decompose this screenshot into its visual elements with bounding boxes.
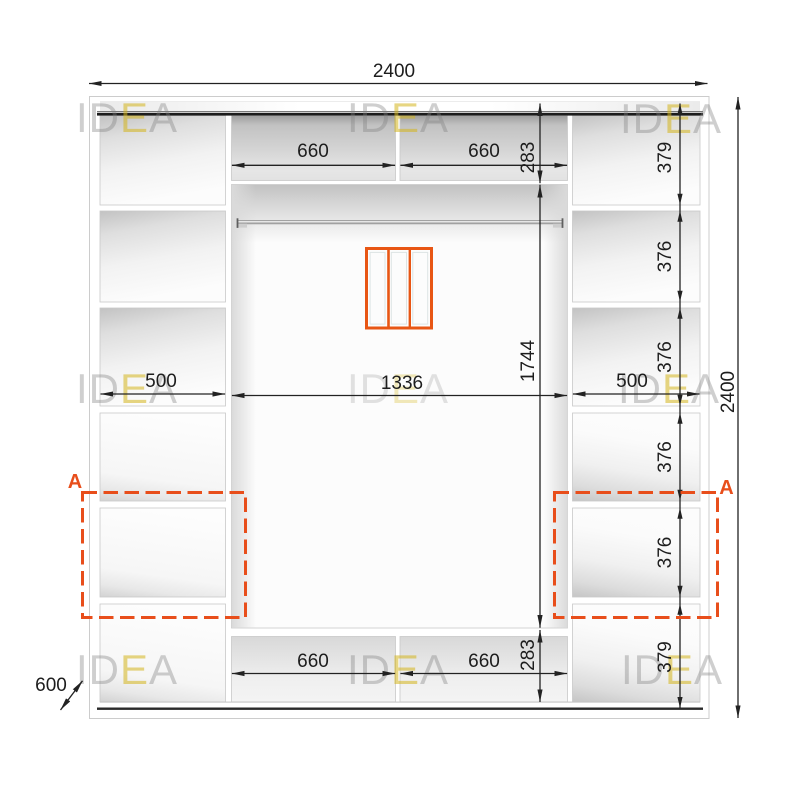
svg-text:IDEA: IDEA [76,646,178,693]
svg-text:500: 500 [145,371,177,392]
svg-text:376: 376 [655,341,676,373]
svg-text:379: 379 [655,142,676,174]
svg-text:660: 660 [297,651,329,672]
svg-text:660: 660 [297,141,329,162]
svg-text:2400: 2400 [373,61,415,82]
svg-text:376: 376 [655,537,676,569]
svg-text:500: 500 [616,371,648,392]
svg-text:IDEA: IDEA [620,95,722,142]
svg-text:660: 660 [468,141,500,162]
svg-text:1744: 1744 [518,339,539,382]
svg-text:660: 660 [468,651,500,672]
svg-text:376: 376 [655,241,676,273]
svg-text:A: A [719,477,733,499]
svg-text:A: A [68,471,82,493]
svg-text:283: 283 [518,142,539,174]
svg-text:600: 600 [35,675,67,696]
svg-text:283: 283 [518,639,539,671]
svg-text:376: 376 [655,441,676,473]
svg-text:2400: 2400 [718,371,739,413]
svg-text:379: 379 [655,641,676,673]
svg-text:IDEA: IDEA [347,94,449,141]
svg-text:1336: 1336 [381,373,423,394]
svg-text:IDEA: IDEA [76,94,178,141]
svg-text:IDEA: IDEA [347,646,449,693]
